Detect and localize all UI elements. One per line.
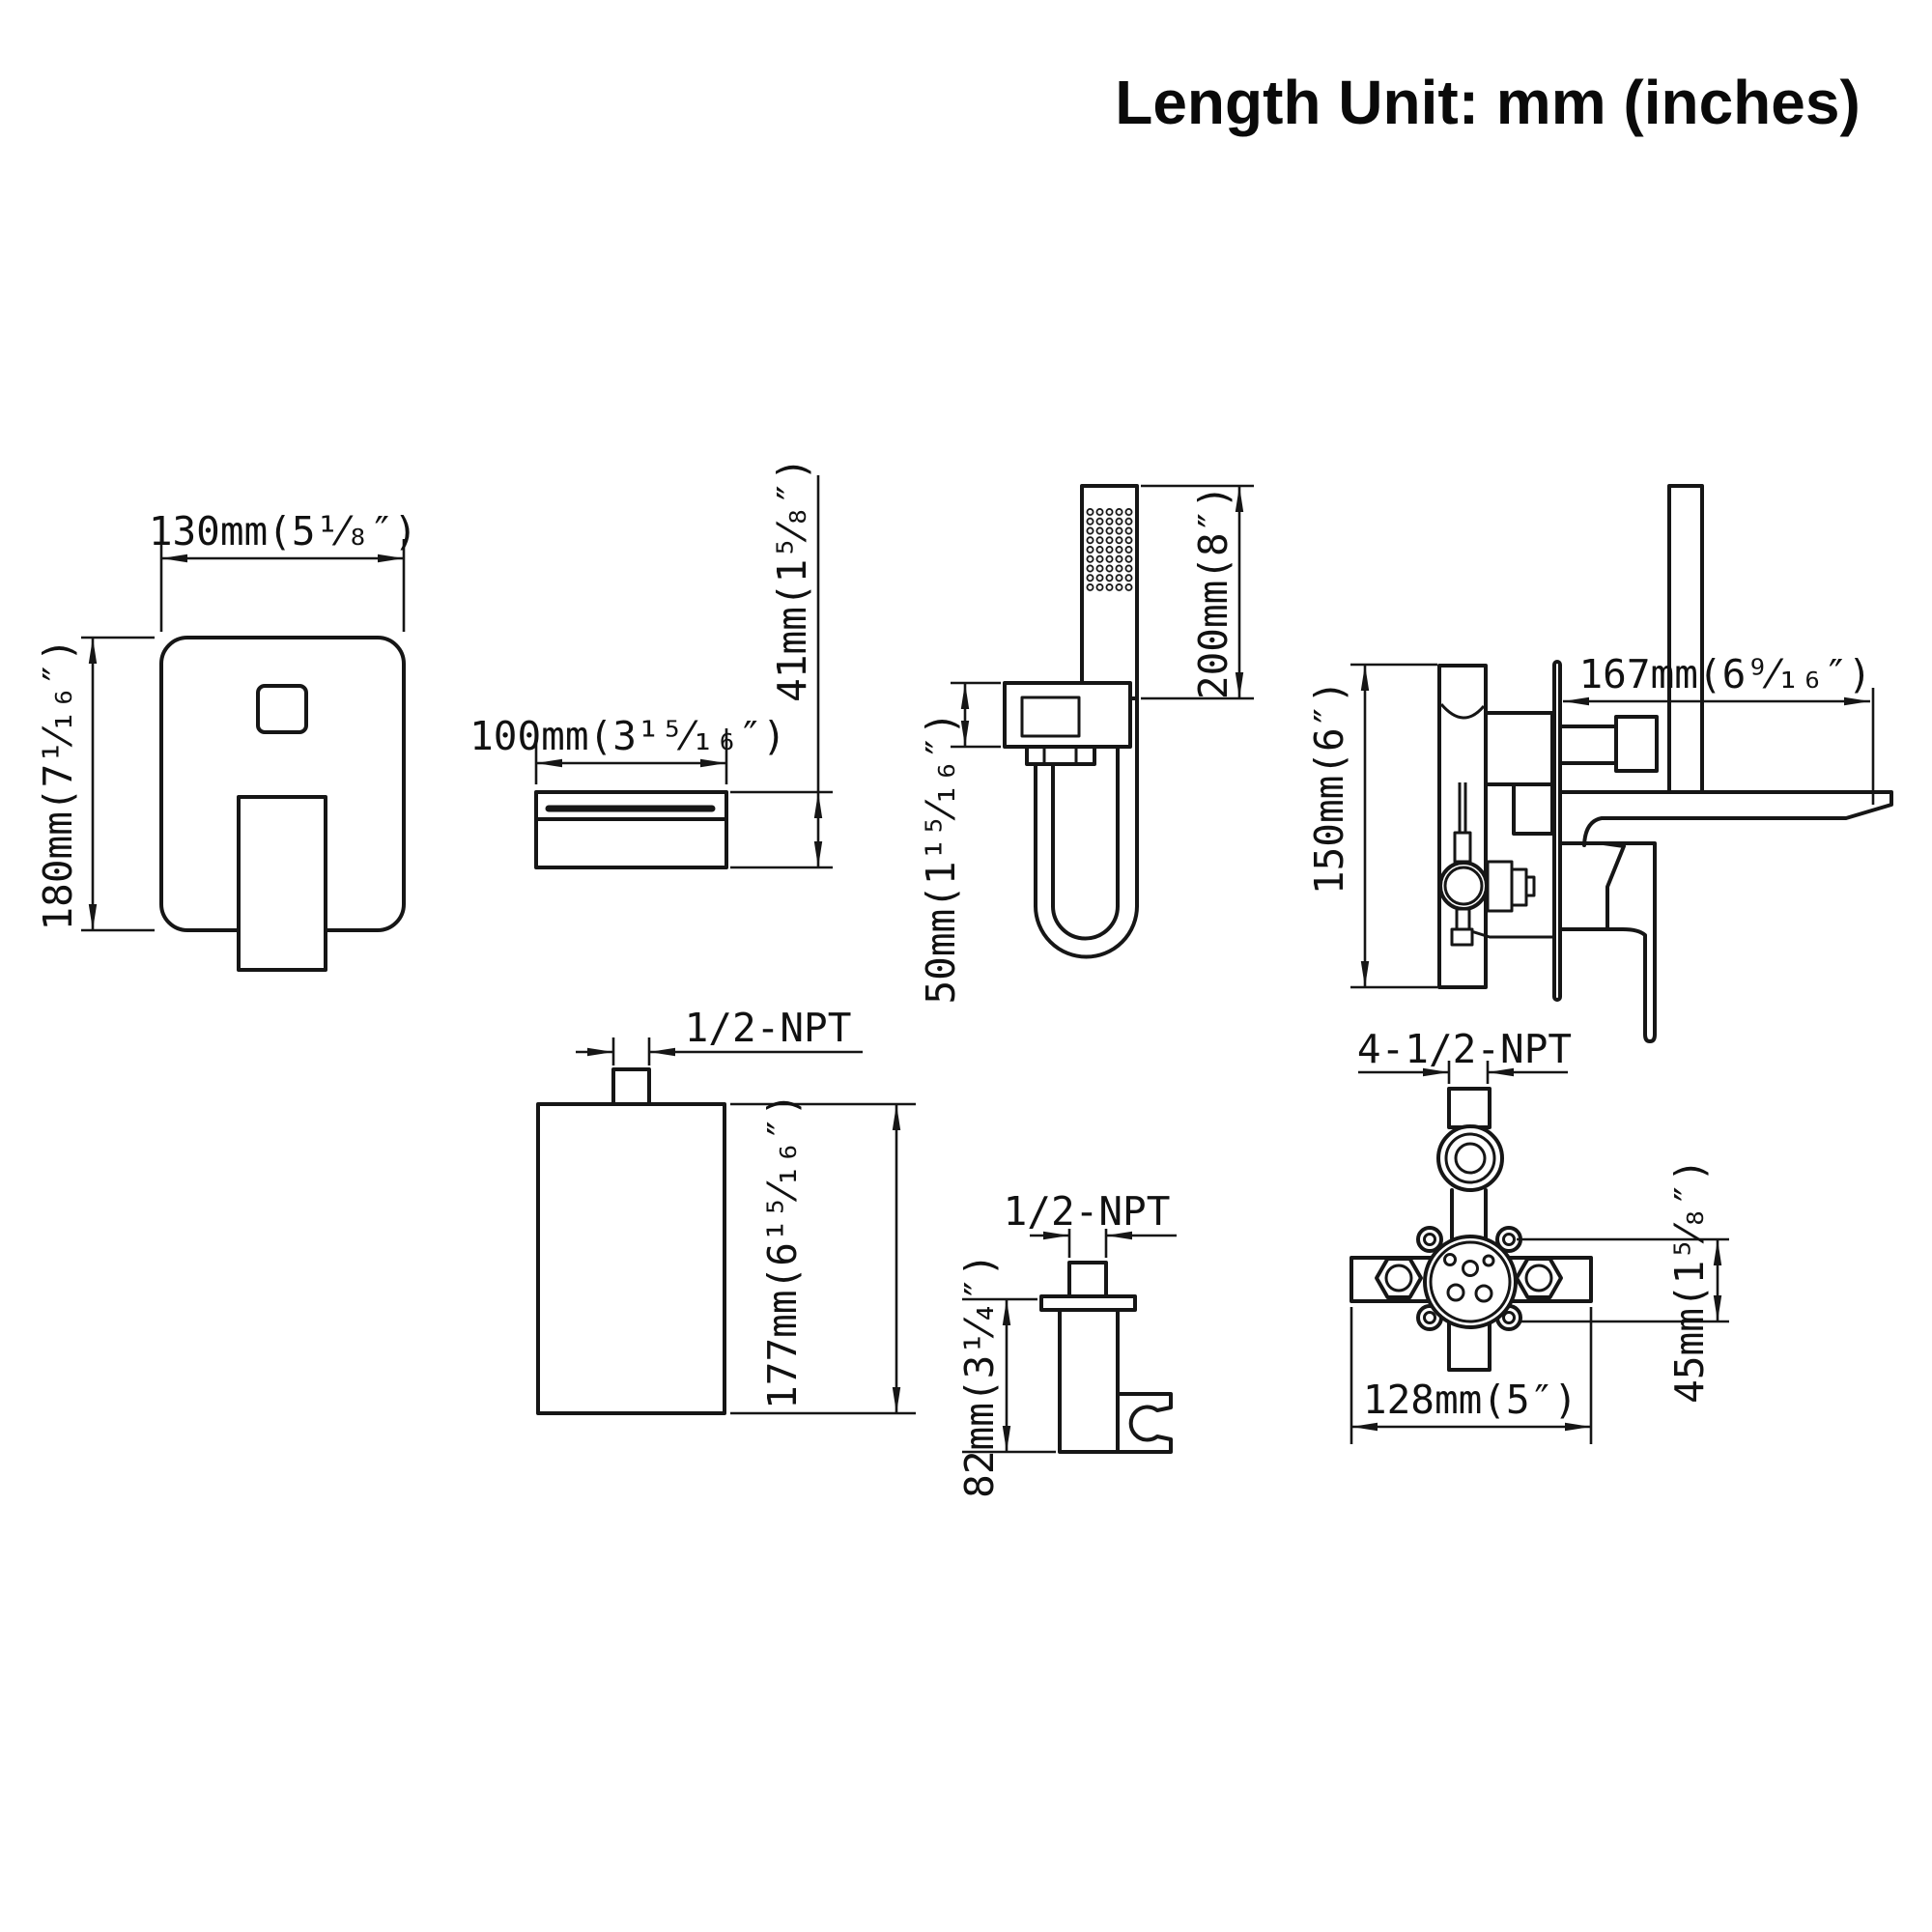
spout-front-view: 100mm(3¹⁵⁄₁₆″) 41mm(1⁵⁄₈″) (469, 457, 833, 867)
screw-head (1452, 929, 1472, 945)
faucet-side-view: 167mm(6⁹⁄₁₆″) 150mm(6″) (1306, 486, 1891, 1041)
holder-height-label: 82mm(3¹⁄₄″) (956, 1253, 1003, 1498)
spout-body (536, 792, 726, 867)
cartridge-stub-c (1526, 877, 1534, 895)
valve-box-view: 1/2-NPT 177mm(6¹⁵⁄₁₆″) (538, 1005, 916, 1413)
rough-in-ports-label: 4-1/2-NPT (1357, 1026, 1572, 1072)
spout-profile (1560, 792, 1891, 845)
spec-drawing: Length Unit: mm (inches) 130mm(5¹⁄₈″) 18… (0, 0, 1932, 1932)
screw-collar-bottom (1457, 909, 1469, 929)
valve-upper-block (1486, 713, 1552, 784)
rough-in-depth-label: 45mm(1⁵⁄₈″) (1666, 1158, 1713, 1404)
trim-height-label: 150mm(6″) (1306, 680, 1352, 895)
valve-box-height-label: 177mm(6¹⁵⁄₁₆″) (759, 1093, 806, 1409)
cartridge-hub (1616, 717, 1657, 771)
height-extension-lines (730, 1104, 916, 1413)
holder-hook (1118, 1394, 1171, 1452)
bracket-opening (1022, 697, 1079, 736)
spout-reach-label: 167mm(6⁹⁄₁₆″) (1578, 651, 1871, 697)
hose-u-bend (1036, 906, 1137, 957)
screw-collar-top (1455, 833, 1470, 862)
valve-box (538, 1104, 724, 1413)
rough-in-valve-view: 4-1/2-NPT 128mm(5″) 45mm(1⁵ (1351, 1026, 1729, 1444)
valve-step-block (1514, 784, 1552, 834)
height-extension-lines (1350, 665, 1437, 987)
escutcheon-cover (1560, 843, 1607, 929)
cartridge-stem-lines (1560, 726, 1616, 763)
wand-length-label: 200mm(8″) (1190, 485, 1236, 699)
spout-riser-pipe (1669, 486, 1702, 792)
handle-lever (1604, 843, 1655, 1041)
valve-box-port (613, 1069, 649, 1104)
spout-height-label: 41mm(1⁵⁄₈″) (769, 457, 815, 702)
hose-left-tube (1036, 764, 1053, 906)
valve-neck (1452, 1190, 1486, 1238)
cartridge-stub-a (1488, 862, 1512, 911)
diverter-button (258, 686, 306, 732)
cartridge-stub-b (1512, 869, 1526, 905)
top-port-pipe (1449, 1089, 1490, 1127)
holder-port-label: 1/2-NPT (1004, 1188, 1171, 1235)
holder-port-stub (1069, 1263, 1106, 1296)
shower-holder-view: 1/2-NPT 82mm(3¹⁄₄″) (956, 1188, 1177, 1498)
port-extension-lines (613, 1037, 649, 1065)
outlet-offset-label: 50mm(1¹⁵⁄₁₆″) (918, 711, 964, 1004)
valve-cartridge-face (1425, 1236, 1516, 1327)
trim-plate-width-label: 130mm(5¹⁄₈″) (149, 508, 417, 554)
hand-shower-view: 200mm(8″) 50mm(1¹⁵⁄₁₆″) (918, 485, 1254, 1005)
valve-box-port-label: 1/2-NPT (685, 1005, 852, 1051)
holder-body (1060, 1310, 1118, 1452)
rough-in-width-label: 128mm(5″) (1363, 1377, 1577, 1423)
trim-plate-height-label: 180mm(7¹⁄₁₆″) (35, 638, 81, 930)
lever-handle (239, 797, 326, 970)
holder-flange (1041, 1296, 1135, 1310)
units-note: Length Unit: mm (inches) (1115, 68, 1861, 137)
hose-nut (1027, 747, 1094, 764)
trim-plate-front-view: 130mm(5¹⁄₈″) 180mm(7¹⁄₁₆″) (35, 508, 417, 970)
top-port-ring-outer (1438, 1126, 1502, 1190)
wall-plate-side (1554, 662, 1560, 1000)
spray-face-dots (1086, 508, 1134, 593)
spout-width-label: 100mm(3¹⁵⁄₁₆″) (469, 713, 786, 759)
valve-port-circle (1440, 863, 1487, 909)
